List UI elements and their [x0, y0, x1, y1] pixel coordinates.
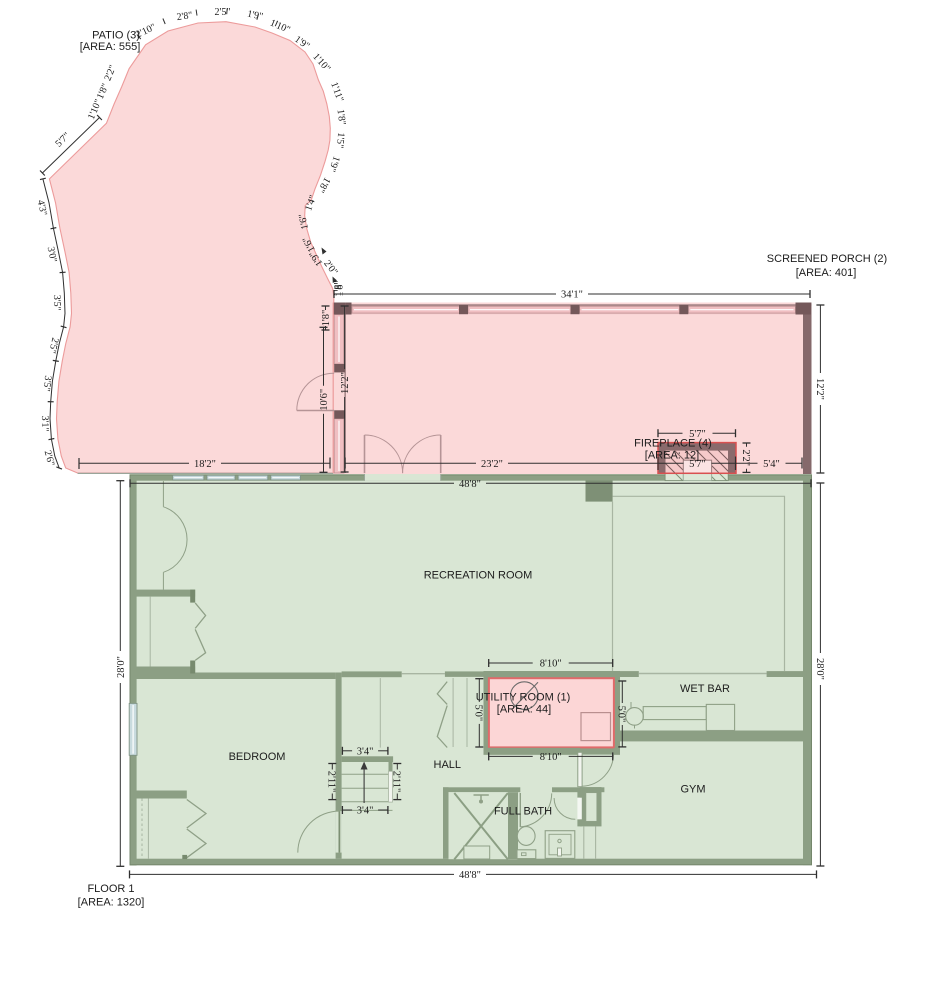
svg-text:10'6": 10'6" [319, 389, 330, 411]
svg-text:1'8": 1'8" [335, 109, 348, 126]
svg-text:PATIO (3): PATIO (3) [92, 30, 140, 42]
svg-text:2'11": 2'11" [391, 771, 402, 793]
svg-text:[AREA: 1320]: [AREA: 1320] [78, 897, 145, 909]
svg-text:3'5": 3'5" [40, 375, 53, 392]
svg-text:BEDROOM: BEDROOM [229, 751, 286, 763]
svg-text:FLOOR 1: FLOOR 1 [87, 883, 134, 895]
svg-text:[AREA: 44]: [AREA: 44] [497, 704, 551, 716]
svg-text:UTILITY ROOM (1): UTILITY ROOM (1) [476, 692, 571, 704]
svg-text:28'0": 28'0" [116, 656, 127, 678]
svg-text:12'2": 12'2" [340, 372, 351, 394]
svg-text:HALL: HALL [434, 759, 462, 771]
svg-text:FULL BATH: FULL BATH [494, 806, 552, 818]
svg-text:2'5": 2'5" [215, 7, 231, 18]
svg-text:[AREA: 401]: [AREA: 401] [796, 267, 857, 279]
svg-text:12'2": 12'2" [814, 378, 825, 400]
svg-text:3'1": 3'1" [39, 416, 50, 432]
svg-text:2'11": 2'11" [326, 771, 337, 793]
svg-text:5'0": 5'0" [473, 705, 484, 722]
svg-text:GYM: GYM [680, 784, 705, 796]
svg-text:28'0": 28'0" [814, 658, 825, 680]
svg-text:48'8": 48'8" [459, 870, 481, 881]
svg-text:5'7": 5'7" [689, 459, 706, 470]
svg-text:[AREA: 555]: [AREA: 555] [80, 41, 141, 53]
svg-text:3'4": 3'4" [357, 806, 374, 817]
svg-text:RECREATION ROOM: RECREATION ROOM [424, 570, 533, 582]
svg-text:5'0": 5'0" [616, 706, 627, 723]
svg-text:23'2": 23'2" [481, 459, 503, 470]
svg-text:34'1": 34'1" [561, 290, 583, 301]
svg-text:3'4": 3'4" [357, 746, 374, 757]
svg-text:8'10": 8'10" [540, 659, 562, 670]
svg-text:48'8": 48'8" [459, 479, 481, 490]
svg-text:2'2": 2'2" [740, 449, 751, 466]
svg-text:2'8": 2'8" [176, 10, 193, 23]
svg-text:18'2": 18'2" [194, 459, 216, 470]
svg-text:SCREENED PORCH (2): SCREENED PORCH (2) [767, 253, 887, 265]
svg-text:3'5": 3'5" [51, 295, 62, 311]
svg-text:1'5": 1'5" [334, 132, 346, 149]
svg-text:1'8": 1'8" [321, 310, 332, 327]
svg-text:8'10": 8'10" [540, 752, 562, 763]
svg-text:5'7": 5'7" [689, 429, 706, 440]
svg-text:1'8": 1'8" [333, 281, 344, 297]
svg-text:5'4": 5'4" [763, 459, 780, 470]
svg-text:WET BAR: WET BAR [680, 683, 730, 695]
